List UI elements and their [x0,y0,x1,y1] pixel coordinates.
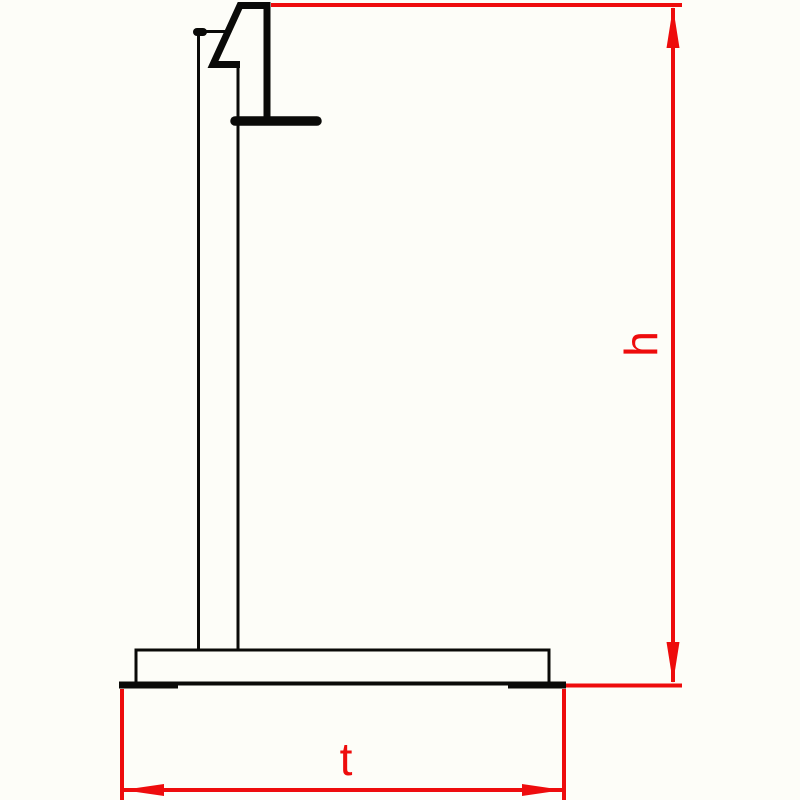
base-plate [136,650,549,683]
height-dimension-label: h [615,331,667,357]
width-arrow-left [123,784,164,796]
height-arrow-up [667,7,680,48]
drawing-canvas: h t [0,0,800,800]
height-dimension: h [271,5,682,686]
width-dimension: t [122,689,564,800]
width-dimension-label: t [340,733,353,785]
width-arrow-right [522,784,563,796]
technical-drawing: h t [0,0,800,800]
hook-profile [213,6,267,120]
stand-outline [119,6,566,686]
height-arrow-down [667,642,680,683]
